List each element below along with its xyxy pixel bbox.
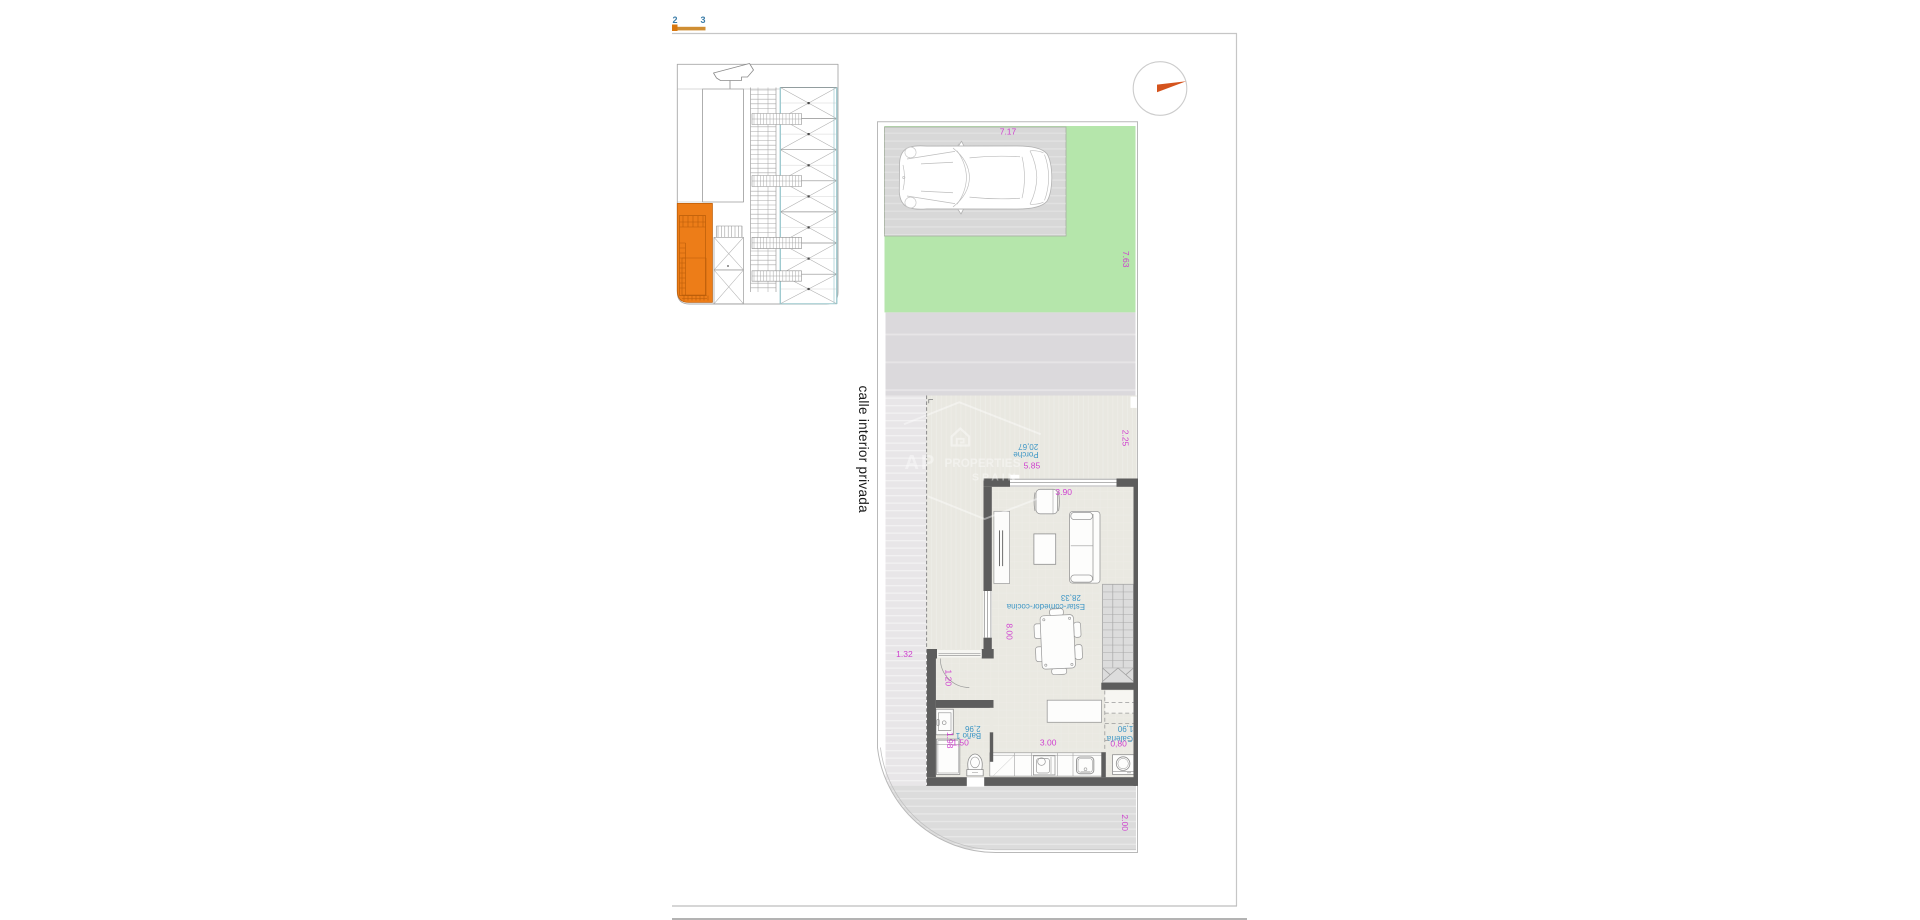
svg-text:Galería: Galería — [1106, 734, 1133, 743]
svg-text:3.90: 3.90 — [1055, 487, 1072, 497]
svg-text:1.32: 1.32 — [896, 649, 913, 659]
svg-text:Estar-comedor-cocina: Estar-comedor-cocina — [1006, 602, 1085, 611]
svg-text:Baño 1: Baño 1 — [955, 731, 981, 740]
svg-text:AP: AP — [905, 452, 937, 474]
svg-text:2.00: 2.00 — [1120, 814, 1130, 831]
svg-text:8.00: 8.00 — [1004, 623, 1014, 640]
svg-text:1.20: 1.20 — [943, 670, 953, 687]
svg-text:PROPERTIES: PROPERTIES — [945, 458, 1021, 470]
svg-text:7.63: 7.63 — [1121, 251, 1131, 268]
svg-text:5.85: 5.85 — [1024, 460, 1041, 470]
svg-text:Porche: Porche — [1013, 450, 1039, 459]
svg-text:3: 3 — [701, 15, 706, 25]
svg-text:SPAIN: SPAIN — [972, 472, 1018, 484]
svg-text:2.25: 2.25 — [1121, 430, 1131, 447]
svg-text:28,33: 28,33 — [1060, 593, 1081, 602]
svg-text:20,67: 20,67 — [1018, 442, 1039, 451]
svg-text:2: 2 — [673, 15, 678, 25]
svg-text:7.17: 7.17 — [1000, 127, 1017, 137]
svg-text:3.00: 3.00 — [1040, 737, 1057, 747]
svg-text:calle interior privada: calle interior privada — [856, 386, 871, 514]
svg-text:1,90: 1,90 — [1117, 724, 1133, 733]
